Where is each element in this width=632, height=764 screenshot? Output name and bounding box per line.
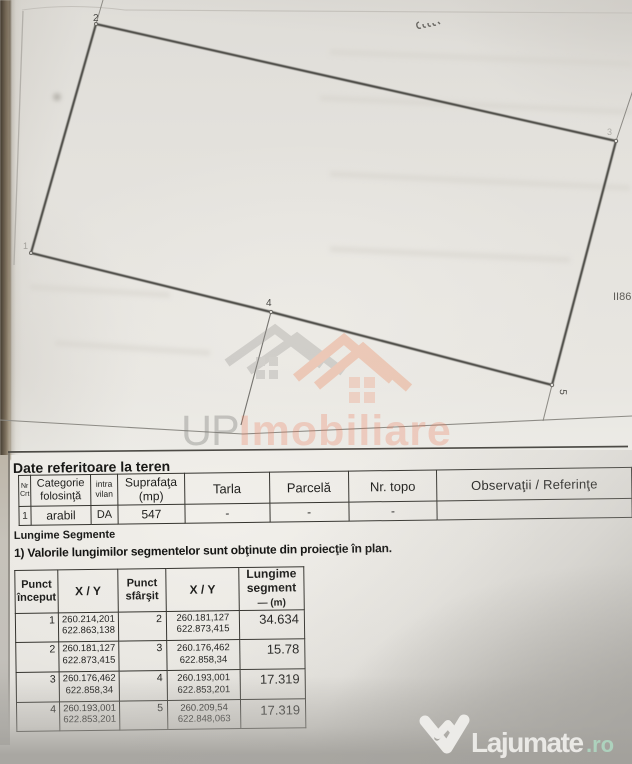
svg-text:.ro: .ro — [586, 732, 614, 757]
svg-text:Lajumate: Lajumate — [471, 727, 584, 758]
